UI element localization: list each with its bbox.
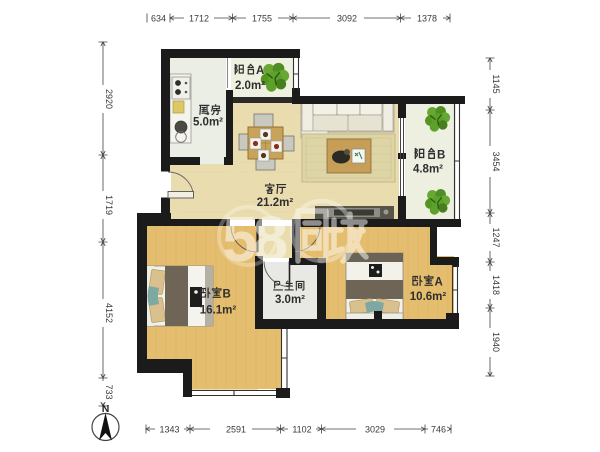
svg-text:1378: 1378 (417, 14, 437, 24)
svg-text:5.0m²: 5.0m² (193, 117, 223, 129)
svg-text:1712: 1712 (189, 14, 209, 24)
svg-text:1343: 1343 (159, 425, 179, 435)
svg-text:1755: 1755 (252, 14, 272, 24)
svg-text:2591: 2591 (226, 425, 246, 435)
svg-text:3029: 3029 (365, 425, 385, 435)
svg-text:58: 58 (222, 203, 287, 275)
svg-text:1247: 1247 (491, 227, 501, 247)
svg-text:2920: 2920 (104, 89, 114, 109)
svg-text:1940: 1940 (491, 332, 501, 352)
svg-text:B: B (223, 289, 231, 301)
svg-text:1145: 1145 (491, 74, 501, 93)
svg-text:4152: 4152 (104, 303, 114, 323)
svg-text:16.1m²: 16.1m² (200, 305, 237, 317)
svg-text:1418: 1418 (491, 275, 501, 295)
svg-text:3454: 3454 (491, 151, 501, 171)
svg-text:1719: 1719 (104, 195, 114, 215)
svg-text:1102: 1102 (292, 425, 311, 435)
svg-text:2.0m²: 2.0m² (235, 80, 265, 92)
svg-text:A: A (435, 277, 443, 289)
svg-text:746: 746 (431, 425, 446, 435)
svg-text:4.8m²: 4.8m² (413, 164, 443, 176)
svg-text:3092: 3092 (337, 14, 357, 24)
svg-text:B: B (437, 150, 445, 162)
svg-text:3.0m²: 3.0m² (275, 294, 305, 306)
svg-text:733: 733 (104, 384, 114, 399)
svg-text:A: A (256, 65, 264, 77)
svg-text:634: 634 (151, 14, 166, 24)
svg-text:10.6m²: 10.6m² (410, 291, 447, 303)
